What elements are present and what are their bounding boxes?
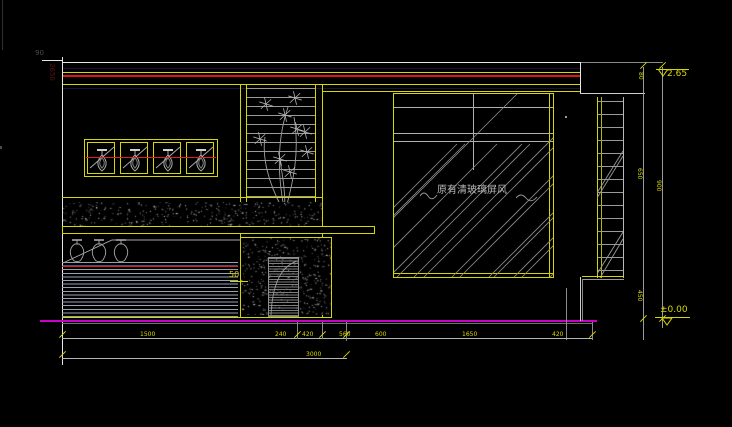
right-corner-vertical (580, 62, 581, 94)
level-bottom-text: ±0.00 (660, 306, 688, 315)
floor-line (40, 320, 597, 322)
band-navy-line-1 (62, 68, 581, 69)
cabinet-note-underline (230, 281, 248, 282)
bottom-dim-text: 1650 (462, 332, 477, 338)
level-top-text: 2.65 (667, 70, 687, 79)
wall-top-line (62, 62, 581, 63)
lamp-symbol-icon (121, 143, 149, 173)
ladder-braces (597, 138, 624, 278)
dim-ext-vertical (592, 323, 593, 339)
right-dim-text: 80 (637, 72, 643, 80)
lamp-symbol-icon (187, 143, 215, 173)
skirting-line (62, 317, 332, 318)
glass-annotation-text: 原有清玻璃屏风 (437, 186, 507, 196)
bottom-dim-line-2 (62, 358, 347, 359)
lamp-symbol-icon (154, 143, 182, 173)
lamp-symbol-icon (88, 143, 116, 173)
cad-elevation-drawing: 90 2650 (0, 0, 732, 427)
cabinet-right-edge (331, 237, 332, 318)
right-dim-text: 900 (655, 180, 661, 191)
lamp-row-red-line (86, 157, 216, 158)
wall-top-extension (581, 62, 663, 63)
louver-red-line (62, 266, 238, 267)
level-bottom-triangle-icon (661, 318, 673, 326)
right-dim-text: 450 (636, 290, 642, 301)
glass-point-marker (565, 116, 567, 118)
faint-left-line (2, 0, 3, 50)
right-dim-extension-2 (662, 67, 663, 328)
band-yellow-line-1 (62, 72, 581, 73)
total-dim-text: 3000 (306, 352, 321, 358)
dim-tick (343, 351, 350, 358)
bottom-dim-text: 240 (275, 332, 286, 338)
step-front-vertical (580, 277, 581, 321)
dim-ext-vertical (322, 322, 323, 339)
misc-vertical-1 (566, 288, 567, 340)
bottom-dim-line-1 (62, 338, 593, 339)
right-corner-horizontal (580, 93, 645, 94)
fascia-top-line (62, 197, 322, 198)
band-red-line (62, 75, 581, 77)
bottom-dim-text: 420 (552, 332, 563, 338)
corner-note-text: 90 (35, 50, 44, 57)
left-extension-tick (42, 60, 62, 61)
cabinet-note-text: 50 (229, 271, 239, 279)
bottom-dim-text: 1500 (140, 332, 155, 338)
bottom-dim-text: 420 (302, 332, 313, 338)
annotation-squiggle-right (516, 192, 538, 202)
step-top-gray (582, 279, 624, 280)
bottom-dim-text: 560 (339, 332, 350, 338)
bar-front-louvers (62, 262, 238, 318)
bottom-dim-text: 600 (375, 332, 386, 338)
opening-head-line (323, 91, 580, 92)
step-top-yellow (582, 276, 624, 277)
stone-fascia-texture (63, 202, 322, 226)
right-dim-extension-1 (643, 67, 644, 340)
faint-left-dot (0, 146, 2, 149)
dim-ext-vertical (297, 322, 298, 339)
door-swing-arc (268, 257, 299, 317)
right-dim-text: 650 (636, 168, 642, 179)
step-inner-vertical (582, 279, 583, 321)
counter-slab (62, 226, 375, 234)
left-rotated-dim-text: 2650 (48, 63, 55, 81)
plant-decor (238, 82, 330, 212)
floor-baseline (62, 323, 593, 324)
annotation-squiggle-left (420, 190, 438, 200)
